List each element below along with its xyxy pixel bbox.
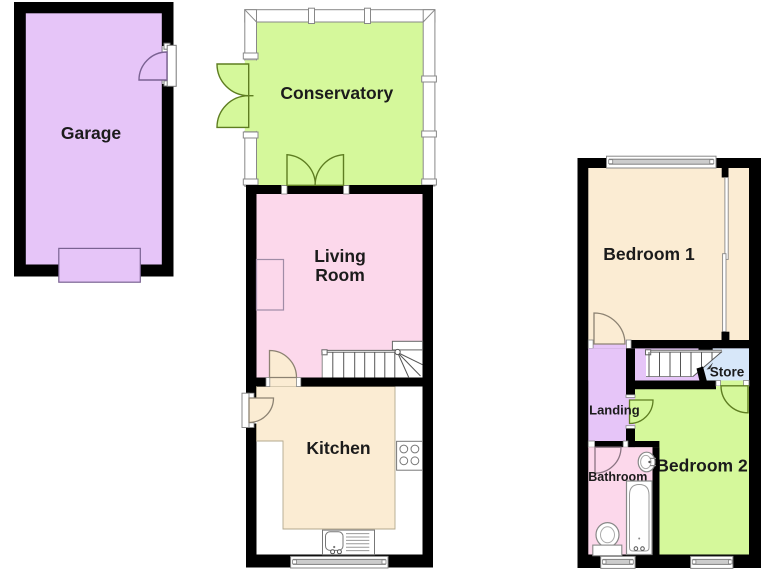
svg-text:Bedroom 2: Bedroom 2 [656, 456, 748, 476]
svg-text:Kitchen: Kitchen [306, 438, 370, 458]
svg-text:Landing: Landing [589, 403, 640, 418]
svg-text:Living: Living [314, 246, 366, 266]
svg-text:Store: Store [710, 365, 745, 380]
svg-text:Conservatory: Conservatory [280, 83, 393, 103]
svg-text:Room: Room [315, 265, 365, 285]
svg-text:Garage: Garage [61, 123, 122, 143]
svg-text:Bedroom 1: Bedroom 1 [603, 244, 695, 264]
